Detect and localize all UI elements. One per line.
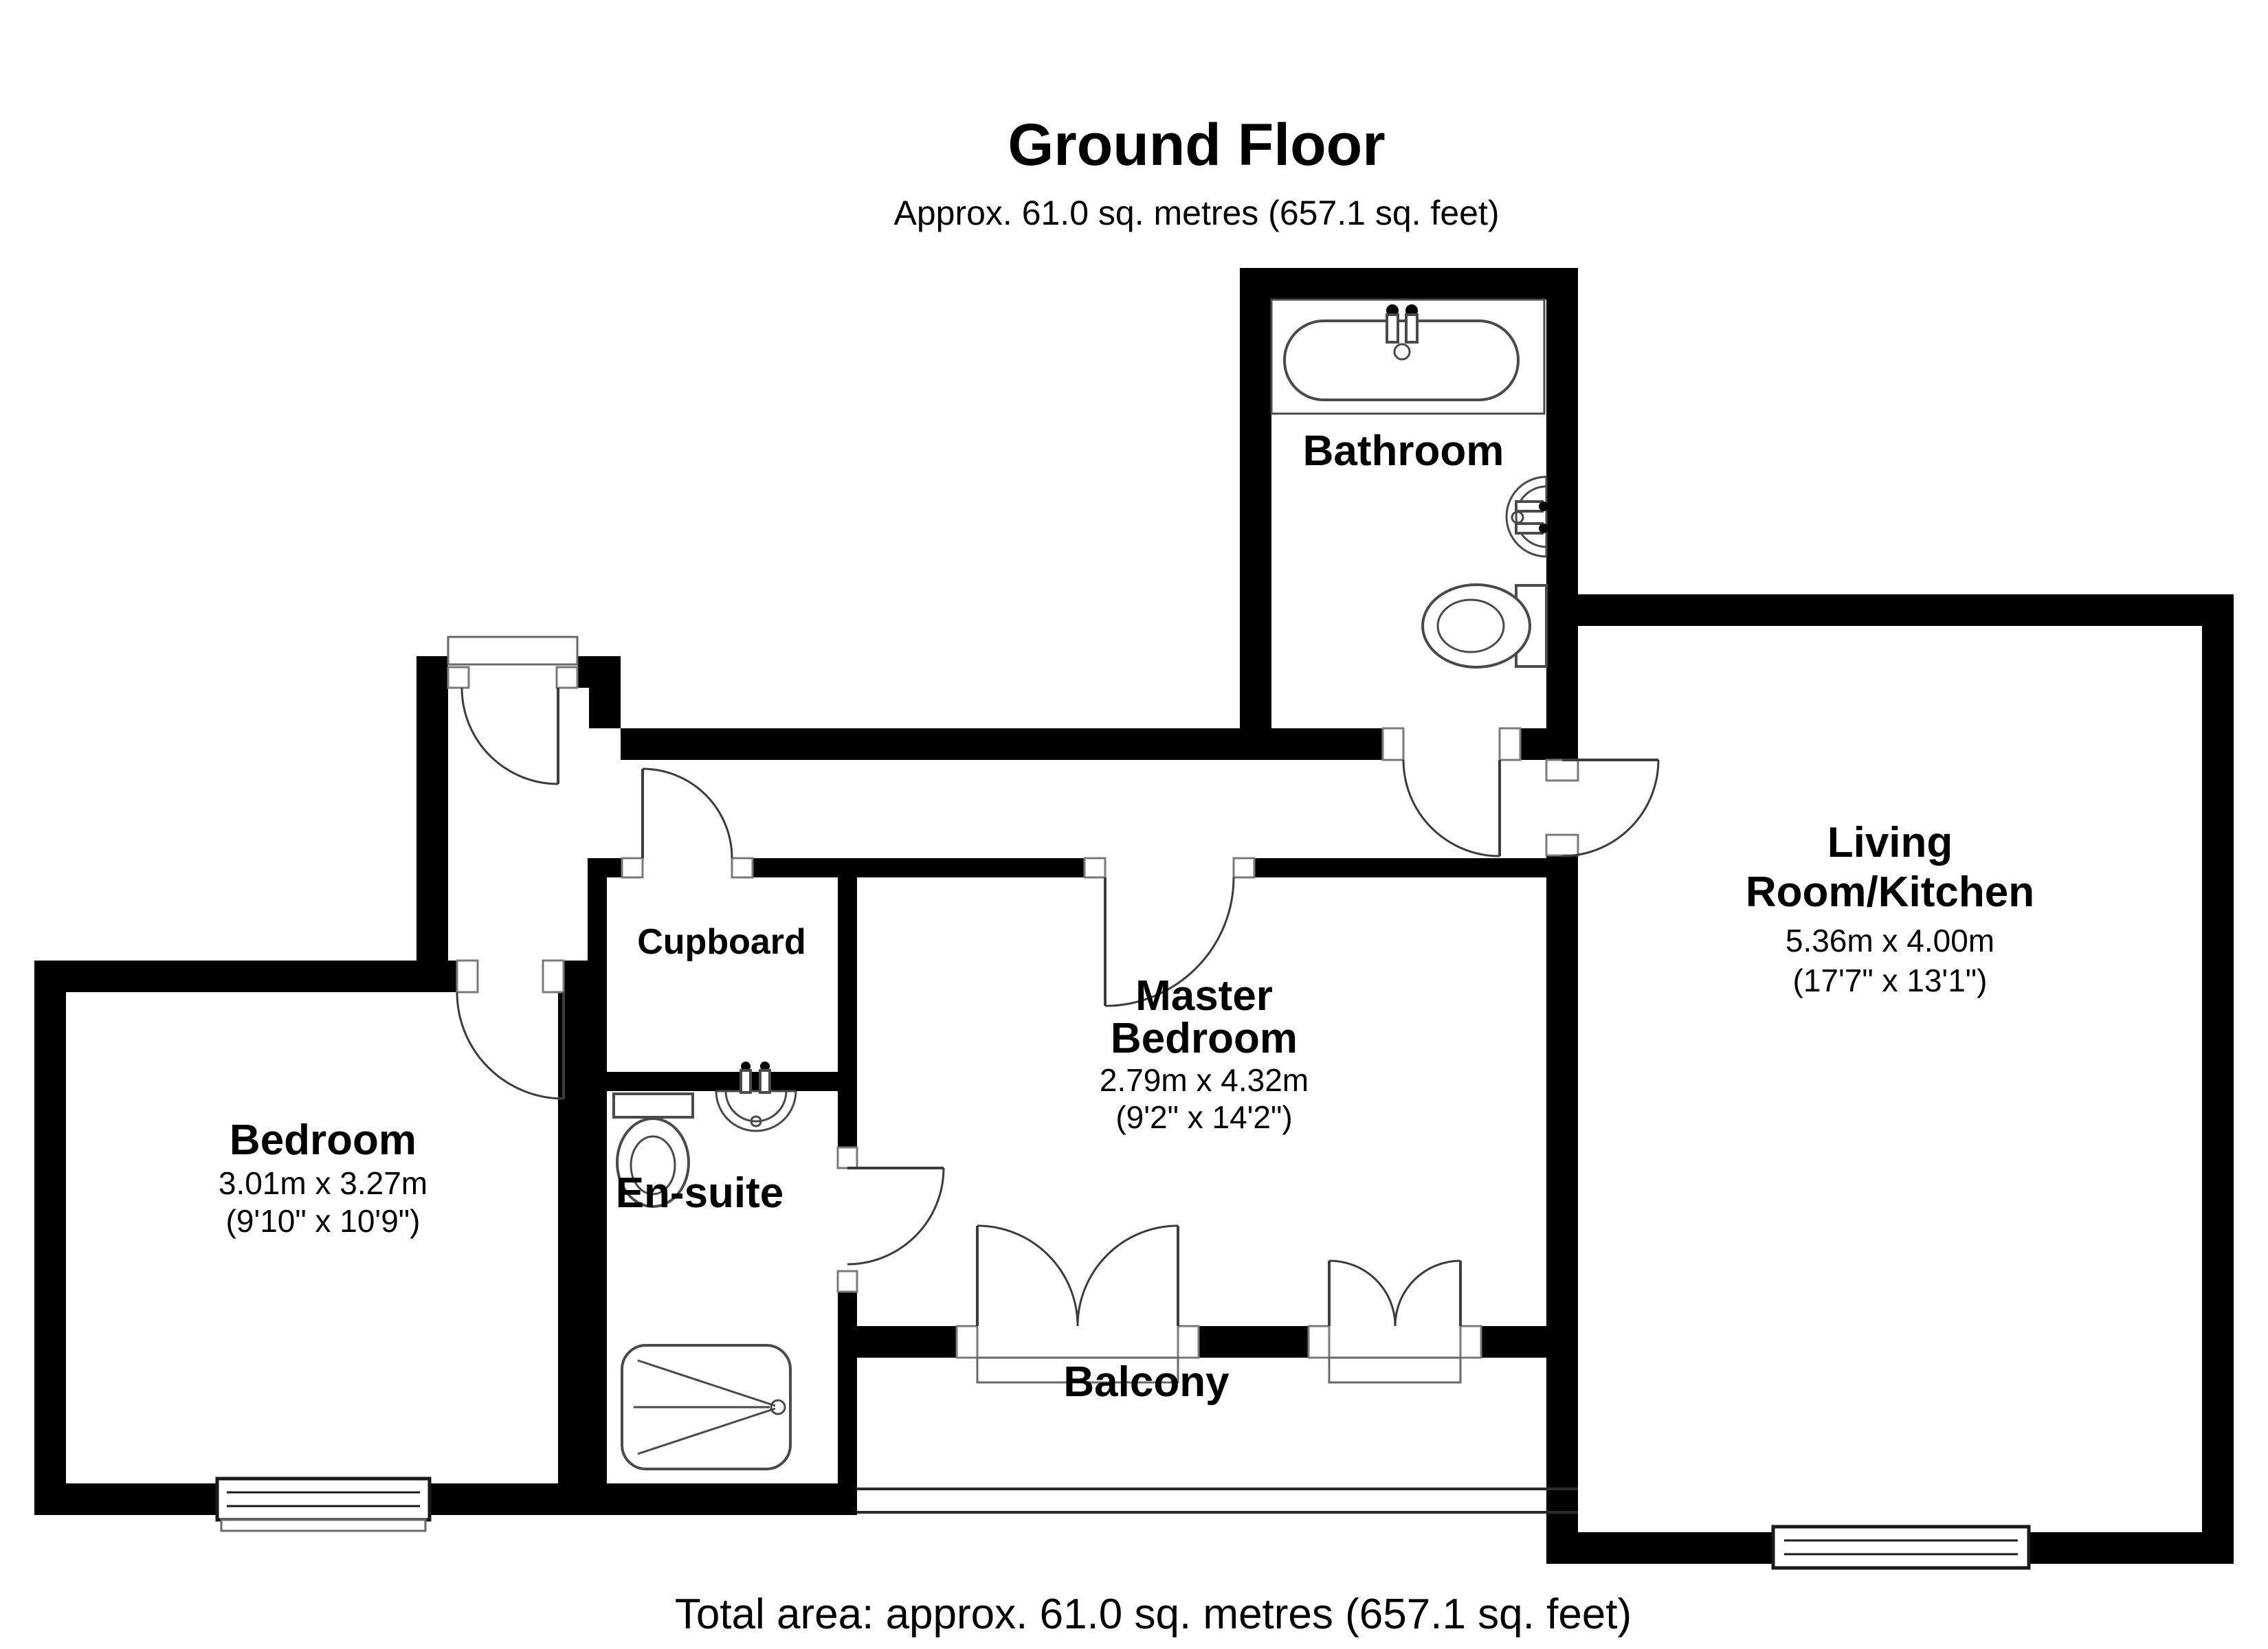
room-dims-master-metric: 2.79m x 4.32m bbox=[1100, 1062, 1309, 1098]
floorplan-canvas: Ground Floor Approx. 61.0 sq. metres (65… bbox=[0, 0, 2268, 1649]
plan-footer-total-area: Total area: approx. 61.0 sq. metres (657… bbox=[675, 1591, 1632, 1638]
room-dims-living-metric: 5.36m x 4.00m bbox=[1786, 923, 1994, 958]
bedroom-window bbox=[217, 1479, 430, 1531]
room-dims-master-imperial: (9'2" x 14'2") bbox=[1115, 1099, 1292, 1135]
room-label-master-line2: Bedroom bbox=[1111, 1015, 1298, 1062]
room-label-cupboard: Cupboard bbox=[637, 922, 806, 962]
room-dims-bedroom-imperial: (9'10" x 10'9") bbox=[226, 1203, 421, 1239]
plan-subtitle: Approx. 61.0 sq. metres (657.1 sq. feet) bbox=[893, 194, 1499, 232]
plan-title: Ground Floor bbox=[1008, 112, 1385, 178]
front-door-panel bbox=[448, 637, 577, 664]
room-label-bathroom: Bathroom bbox=[1303, 427, 1504, 475]
room-dims-bedroom-metric: 3.01m x 3.27m bbox=[219, 1165, 427, 1201]
room-label-master-line1: Master bbox=[1135, 972, 1273, 1020]
room-label-balcony: Balcony bbox=[1063, 1358, 1230, 1406]
room-label-bedroom: Bedroom bbox=[230, 1117, 416, 1164]
bathroom-toilet-icon bbox=[1423, 585, 1546, 667]
room-label-ensuite: En-suite bbox=[616, 1169, 784, 1217]
floorplan-page: Ground Floor Approx. 61.0 sq. metres (65… bbox=[0, 0, 2268, 1649]
shower-tray-icon bbox=[622, 1345, 790, 1469]
room-label-living-line1: Living bbox=[1827, 819, 1953, 866]
room-label-living-line2: Room/Kitchen bbox=[1746, 868, 2034, 916]
room-dims-living-imperial: (17'7" x 13'1") bbox=[1793, 963, 1988, 998]
living-room-window bbox=[1773, 1527, 2029, 1568]
